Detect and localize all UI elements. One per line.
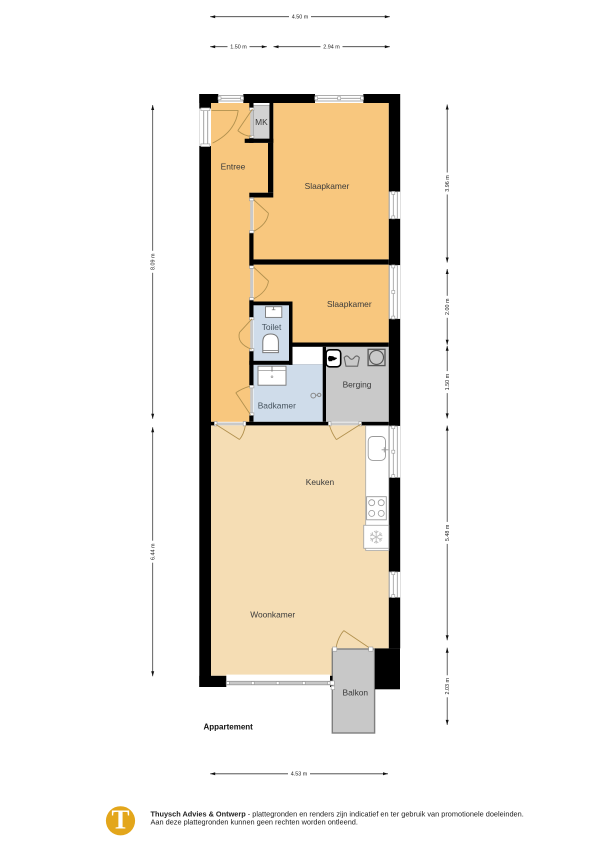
svg-text:6.44 m: 6.44 m xyxy=(151,543,157,560)
svg-text:4.50 m: 4.50 m xyxy=(292,15,309,21)
svg-text:Berging: Berging xyxy=(343,379,372,389)
svg-text:Entree: Entree xyxy=(221,161,246,171)
svg-text:3.96 m: 3.96 m xyxy=(445,175,451,192)
svg-text:Aan deze plattegronden kunnen: Aan deze plattegronden kunnen geen recht… xyxy=(151,818,358,827)
svg-text:1.50 m: 1.50 m xyxy=(230,45,247,51)
svg-text:Slaapkamer: Slaapkamer xyxy=(305,181,350,191)
svg-text:T: T xyxy=(111,804,129,834)
svg-text:1.50 m: 1.50 m xyxy=(445,373,451,390)
svg-text:Keuken: Keuken xyxy=(306,477,335,487)
svg-text:Balkon: Balkon xyxy=(342,688,368,698)
svg-text:5.48 m: 5.48 m xyxy=(445,524,451,541)
svg-text:8.09 m: 8.09 m xyxy=(151,253,157,270)
svg-text:2.03 m: 2.03 m xyxy=(445,678,451,695)
svg-text:Badkamer: Badkamer xyxy=(258,401,296,411)
svg-text:2.00 m: 2.00 m xyxy=(445,298,451,315)
svg-text:2.94 m: 2.94 m xyxy=(323,45,340,51)
svg-text:Toilet: Toilet xyxy=(262,322,282,332)
svg-text:4.53 m: 4.53 m xyxy=(291,772,308,778)
svg-text:Woonkamer: Woonkamer xyxy=(250,610,295,620)
svg-text:Appartement: Appartement xyxy=(204,723,254,732)
svg-text:Slaapkamer: Slaapkamer xyxy=(327,299,372,309)
svg-text:MK: MK xyxy=(255,117,268,127)
